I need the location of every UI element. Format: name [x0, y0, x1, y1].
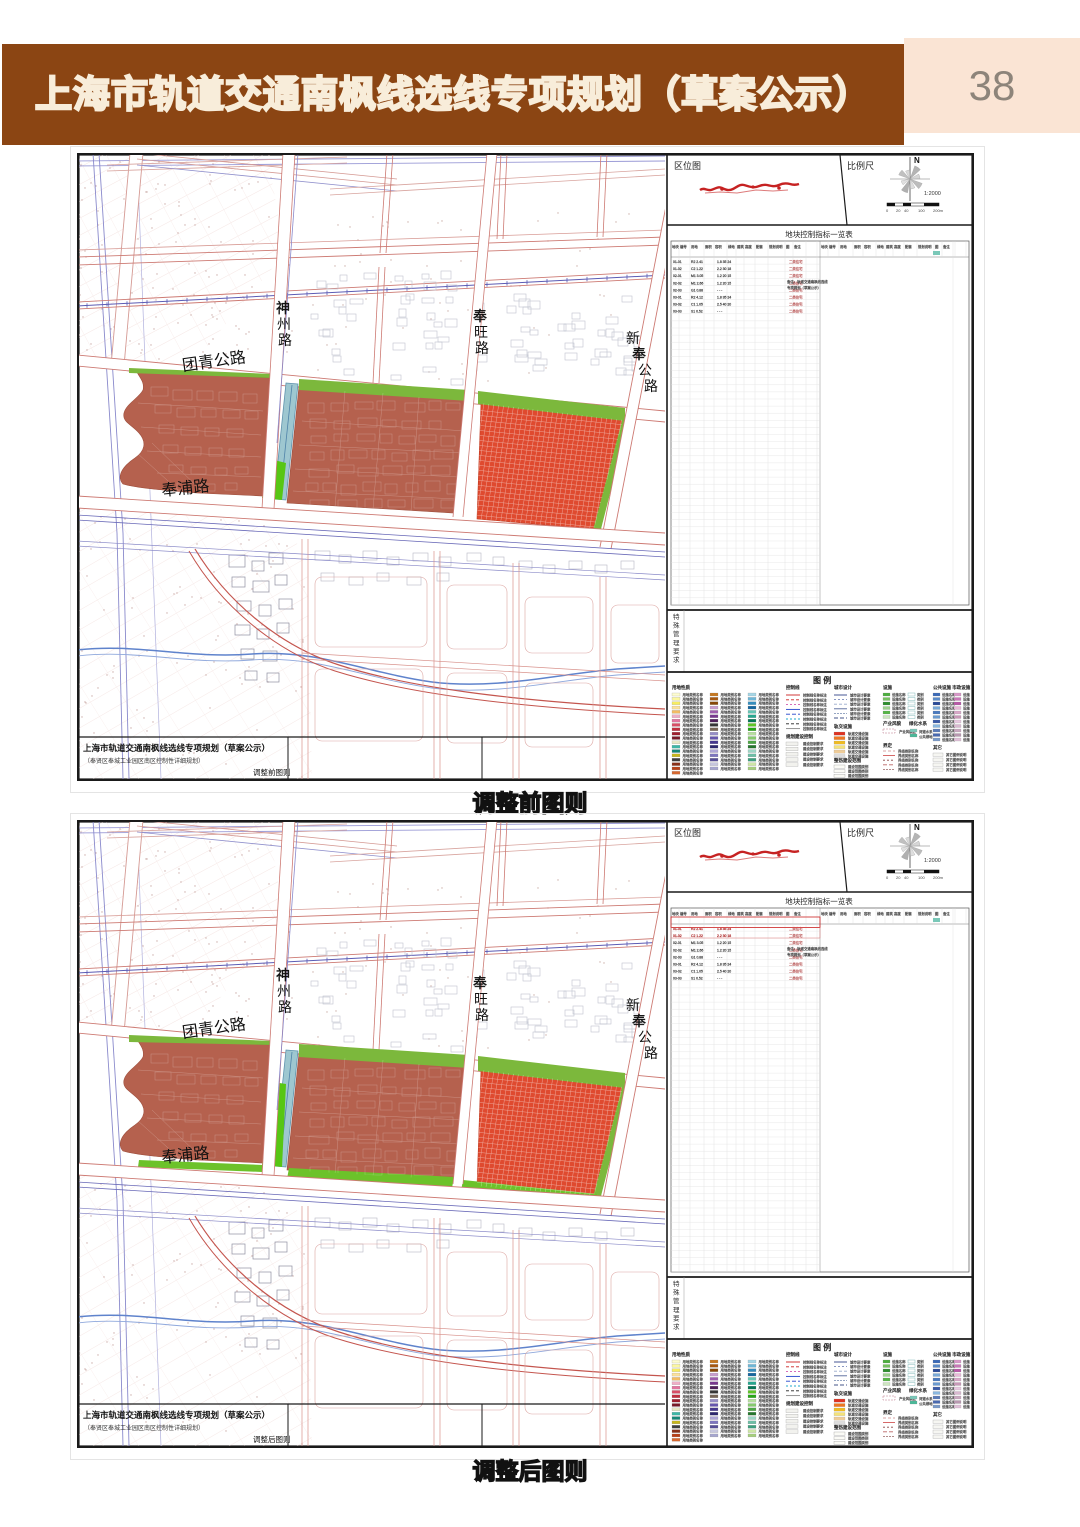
svg-text:20: 20 — [896, 208, 901, 213]
svg-text:界线类别名称: 界线类别名称 — [898, 758, 919, 763]
svg-text:设施名称: 设施名称 — [892, 1372, 906, 1377]
svg-text:用地类别名称: 用地类别名称 — [683, 753, 704, 758]
svg-text:用地类别名称: 用地类别名称 — [683, 1359, 704, 1364]
svg-text:二类住宅: 二类住宅 — [789, 259, 803, 264]
svg-text:用地类别名称: 用地类别名称 — [721, 1398, 742, 1403]
svg-text:控制线名称标注: 控制线名称标注 — [803, 1369, 827, 1374]
svg-text:轨道交通设施: 轨道交通设施 — [848, 735, 869, 740]
svg-text:容积: 容积 — [864, 911, 871, 916]
svg-text:用地类别名称: 用地类别名称 — [721, 1407, 742, 1412]
svg-text:绿化水系: 绿化水系 — [909, 720, 927, 727]
svg-text:地块: 地块 — [821, 244, 828, 249]
svg-text:- - -: - - - — [717, 288, 722, 292]
svg-text:用地类别名称: 用地类别名称 — [721, 1368, 742, 1373]
svg-text:公: 公 — [638, 1029, 652, 1045]
svg-text:轨道交通设施: 轨道交通设施 — [848, 731, 869, 736]
svg-text:界线类别名称: 界线类别名称 — [898, 767, 919, 772]
svg-text:用地: 用地 — [840, 911, 847, 916]
svg-text:城市设计要素: 城市设计要素 — [850, 1378, 871, 1383]
svg-text:用地类别名称: 用地类别名称 — [759, 1420, 780, 1425]
svg-text:奉: 奉 — [473, 308, 487, 324]
svg-text:设施名称: 设施名称 — [892, 1377, 906, 1382]
svg-text:轨道交通设施: 轨道交通设施 — [848, 1402, 869, 1407]
svg-text:1:2000: 1:2000 — [924, 191, 941, 197]
svg-text:用地类别名称: 用地类别名称 — [683, 1403, 704, 1408]
svg-text:轨交设施: 轨交设施 — [834, 723, 852, 730]
svg-text:类别: 类别 — [917, 696, 924, 701]
svg-text:配套: 配套 — [756, 244, 763, 249]
svg-text:用地类别名称: 用地类别名称 — [759, 692, 780, 697]
svg-text:界线类别名称: 界线类别名称 — [898, 1429, 919, 1434]
svg-text:控制线名称标注: 控制线名称标注 — [803, 721, 827, 726]
svg-text:用地类别名称: 用地类别名称 — [721, 749, 742, 754]
svg-text:配套: 配套 — [905, 244, 912, 249]
svg-text:用地类别名称: 用地类别名称 — [721, 1416, 742, 1421]
svg-text:1.8 35 24: 1.8 35 24 — [717, 296, 731, 300]
svg-text:用地: 用地 — [691, 244, 698, 249]
svg-text:用地: 用地 — [840, 244, 847, 249]
svg-text:用地类别名称: 用地类别名称 — [721, 705, 742, 710]
svg-text:类别: 类别 — [917, 1368, 924, 1373]
svg-text:建设控制要求: 建设控制要求 — [803, 1418, 824, 1423]
svg-text:城市设计要素: 城市设计要素 — [850, 711, 871, 716]
svg-text:建设控制要求: 建设控制要求 — [803, 757, 824, 762]
svg-text:建筑: 建筑 — [737, 911, 744, 916]
svg-text:控制线名称标注: 控制线名称标注 — [803, 1379, 827, 1384]
svg-text:用地类别名称: 用地类别名称 — [683, 1376, 704, 1381]
svg-text:界线类别名称: 界线类别名称 — [898, 1425, 919, 1430]
svg-text:公共绿地: 公共绿地 — [919, 1401, 933, 1406]
svg-text:用地类别名称: 用地类别名称 — [721, 740, 742, 745]
svg-text:02-01: 02-01 — [673, 941, 682, 945]
svg-text:建设控制要求: 建设控制要求 — [803, 1408, 824, 1413]
svg-text:控制线名称标注: 控制线名称标注 — [803, 1388, 827, 1393]
svg-text:用地类别名称: 用地类别名称 — [683, 1389, 704, 1394]
svg-text:设施: 设施 — [963, 1399, 970, 1404]
svg-text:编号: 编号 — [680, 911, 687, 916]
svg-text:规划说明: 规划说明 — [769, 911, 783, 916]
svg-text:奉: 奉 — [632, 346, 646, 362]
svg-text:用地类别名称: 用地类别名称 — [683, 1385, 704, 1390]
svg-text:用地类别名称: 用地类别名称 — [721, 1385, 742, 1390]
svg-text:设施: 设施 — [963, 1377, 970, 1382]
svg-text:整饬建设范围: 整饬建设范围 — [834, 757, 861, 764]
svg-text:用地类别名称: 用地类别名称 — [759, 1411, 780, 1416]
svg-text:区位图: 区位图 — [674, 160, 701, 171]
svg-text:城市设计要素: 城市设计要素 — [850, 1360, 871, 1365]
svg-text:用地类别名称: 用地类别名称 — [683, 722, 704, 727]
svg-text:用地类别名称: 用地类别名称 — [683, 766, 704, 771]
svg-text:规划说明: 规划说明 — [769, 244, 783, 249]
svg-text:用地类别名称: 用地类别名称 — [759, 705, 780, 710]
svg-text:二类住宅: 二类住宅 — [789, 969, 803, 974]
svg-text:控制线名称标注: 控制线名称标注 — [803, 707, 827, 712]
svg-text:用地类别名称: 用地类别名称 — [721, 766, 742, 771]
svg-text:公: 公 — [638, 362, 652, 378]
svg-text:用地类别名称: 用地类别名称 — [721, 1424, 742, 1429]
svg-text:其它图例说明: 其它图例说明 — [946, 1429, 967, 1434]
svg-text:用地类别名称: 用地类别名称 — [759, 1372, 780, 1377]
svg-text:用地类别名称: 用地类别名称 — [721, 692, 742, 697]
svg-text:区位图: 区位图 — [674, 827, 701, 838]
svg-text:用地类别名称: 用地类别名称 — [721, 1363, 742, 1368]
svg-text:奉: 奉 — [473, 975, 487, 991]
svg-text:用地类别名称: 用地类别名称 — [759, 722, 780, 727]
svg-text:公共设施 市政设施: 公共设施 市政设施 — [933, 1351, 971, 1358]
svg-text:用地类别名称: 用地类别名称 — [759, 701, 780, 706]
svg-text:专项规划（草案公示）: 专项规划（草案公示） — [787, 285, 821, 290]
svg-text:设施: 设施 — [963, 1395, 970, 1400]
svg-text:M1 3.05: M1 3.05 — [691, 274, 703, 278]
svg-text:建设范围类别: 建设范围类别 — [848, 1440, 869, 1445]
svg-text:控制线名称标注: 控制线名称标注 — [803, 712, 827, 717]
svg-text:用地类别名称: 用地类别名称 — [721, 762, 742, 767]
svg-text:用地类别名称: 用地类别名称 — [683, 740, 704, 745]
svg-text:路: 路 — [278, 332, 292, 348]
svg-text:城市设计要素: 城市设计要素 — [850, 716, 871, 721]
svg-text:建筑: 建筑 — [886, 244, 893, 249]
svg-text:用地类别名称: 用地类别名称 — [683, 1363, 704, 1368]
svg-text:备注：轨道交通南枫线选线: 备注：轨道交通南枫线选线 — [787, 946, 828, 951]
svg-text:设施名称: 设施名称 — [892, 701, 906, 706]
svg-text:州: 州 — [277, 983, 291, 999]
svg-text:其它图例说明: 其它图例说明 — [946, 1419, 967, 1424]
svg-text:城市设计要素: 城市设计要素 — [850, 1364, 871, 1369]
svg-text:要: 要 — [673, 1314, 680, 1322]
svg-text:用地类别名称: 用地类别名称 — [721, 1381, 742, 1386]
svg-text:城市设计要素: 城市设计要素 — [850, 702, 871, 707]
svg-text:用地类别名称: 用地类别名称 — [721, 736, 742, 741]
svg-text:用地类别名称: 用地类别名称 — [683, 1424, 704, 1429]
svg-text:设施名称: 设施名称 — [892, 696, 906, 701]
svg-text:设施: 设施 — [963, 710, 970, 715]
svg-text:城市设计要素: 城市设计要素 — [850, 693, 871, 698]
svg-text:求: 求 — [673, 1322, 680, 1331]
svg-text:面积: 面积 — [705, 244, 712, 249]
svg-text:设施: 设施 — [963, 705, 970, 710]
svg-text:上海市轨道交通南枫线选线专项规划（草案公示）: 上海市轨道交通南枫线选线专项规划（草案公示） — [83, 1410, 270, 1420]
svg-text:用地类别名称: 用地类别名称 — [759, 1368, 780, 1373]
svg-text:用地类别名称: 用地类别名称 — [759, 718, 780, 723]
svg-text:调整前图则: 调整前图则 — [253, 767, 291, 777]
svg-text:规划说明: 规划说明 — [918, 911, 932, 916]
svg-text:N: N — [914, 823, 920, 832]
svg-text:新: 新 — [626, 997, 640, 1013]
svg-text:C2 1.22: C2 1.22 — [691, 934, 703, 938]
svg-text:R2 4.12: R2 4.12 — [691, 296, 703, 300]
svg-text:容积: 容积 — [864, 244, 871, 249]
svg-text:比例尺: 比例尺 — [847, 827, 874, 838]
svg-text:二类住宅: 二类住宅 — [789, 940, 803, 945]
svg-text:用地类别名称: 用地类别名称 — [721, 757, 742, 762]
svg-text:用地类别名称: 用地类别名称 — [683, 1437, 704, 1442]
svg-text:特: 特 — [673, 1279, 680, 1288]
svg-text:用地类别名称: 用地类别名称 — [721, 1389, 742, 1394]
svg-text:配套: 配套 — [905, 911, 912, 916]
svg-text:设施: 设施 — [963, 1359, 970, 1364]
svg-text:用地类别名称: 用地类别名称 — [721, 1403, 742, 1408]
svg-text:编号: 编号 — [680, 244, 687, 249]
svg-text:用地类别名称: 用地类别名称 — [683, 770, 704, 775]
svg-text:城市设计: 城市设计 — [834, 684, 852, 691]
svg-text:旺: 旺 — [474, 324, 488, 340]
svg-text:03-03: 03-03 — [673, 310, 682, 314]
svg-text:用地类别名称: 用地类别名称 — [721, 744, 742, 749]
svg-text:地块: 地块 — [672, 911, 679, 916]
svg-text:用地类别名称: 用地类别名称 — [759, 1398, 780, 1403]
svg-text:用地类别名称: 用地类别名称 — [683, 1368, 704, 1373]
svg-text:设施: 设施 — [963, 728, 970, 733]
svg-text:C1 1.05: C1 1.05 — [691, 303, 703, 307]
svg-text:2.2 30 18: 2.2 30 18 — [717, 934, 731, 938]
svg-text:神: 神 — [276, 967, 290, 983]
svg-text:绿地: 绿地 — [728, 244, 735, 249]
svg-text:地块控制指标一览表: 地块控制指标一览表 — [785, 896, 853, 906]
svg-text:用地类别名称: 用地类别名称 — [759, 1403, 780, 1408]
svg-text:用地类别名称: 用地类别名称 — [683, 705, 704, 710]
svg-text:理: 理 — [673, 1306, 680, 1314]
svg-text:路: 路 — [644, 1045, 658, 1061]
svg-text:设施: 设施 — [963, 1390, 970, 1395]
svg-text:用地类别名称: 用地类别名称 — [683, 1394, 704, 1399]
svg-text:设施: 设施 — [963, 1404, 970, 1409]
svg-text:用地类别名称: 用地类别名称 — [683, 1429, 704, 1434]
svg-text:二类住宅: 二类住宅 — [789, 266, 803, 271]
svg-text:类别: 类别 — [917, 1377, 924, 1382]
svg-text:用地类别名称: 用地类别名称 — [683, 718, 704, 723]
svg-text:用地类别名称: 用地类别名称 — [721, 696, 742, 701]
svg-text:绿地: 绿地 — [877, 244, 884, 249]
svg-text:用地类别名称: 用地类别名称 — [759, 744, 780, 749]
svg-text:1.2 20 15: 1.2 20 15 — [717, 948, 731, 952]
svg-text:用地类别名称: 用地类别名称 — [759, 731, 780, 736]
svg-text:备注: 备注 — [943, 911, 950, 916]
svg-text:2.5 40 20: 2.5 40 20 — [717, 303, 731, 307]
svg-text:轨道交通设施: 轨道交通设施 — [848, 740, 869, 745]
svg-text:用地类别名称: 用地类别名称 — [759, 753, 780, 758]
svg-text:二类住宅: 二类住宅 — [789, 273, 803, 278]
svg-text:M1 2.66: M1 2.66 — [691, 948, 703, 952]
svg-text:设施名称: 设施名称 — [892, 705, 906, 710]
svg-text:M1 2.66: M1 2.66 — [691, 281, 703, 285]
svg-text:建设范围类别: 建设范围类别 — [848, 764, 869, 769]
svg-text:用地类别名称: 用地类别名称 — [759, 762, 780, 767]
svg-text:M1 3.05: M1 3.05 — [691, 941, 703, 945]
svg-text:设施: 设施 — [963, 1363, 970, 1368]
svg-text:轨道交通设施: 轨道交通设施 — [848, 1407, 869, 1412]
svg-text:用地类别名称: 用地类别名称 — [721, 714, 742, 719]
svg-text:02-02: 02-02 — [673, 948, 682, 952]
svg-text:建设范围类别: 建设范围类别 — [848, 1431, 869, 1436]
svg-text:（奉贤区奉城工业园区南区控制性详细规划）: （奉贤区奉城工业园区南区控制性详细规划） — [84, 1424, 204, 1432]
svg-text:C1 1.05: C1 1.05 — [691, 970, 703, 974]
svg-text:其它: 其它 — [933, 744, 942, 751]
svg-text:G1 0.88: G1 0.88 — [691, 288, 703, 292]
svg-text:用地类别名称: 用地类别名称 — [683, 731, 704, 736]
svg-text:用地类别名称: 用地类别名称 — [759, 1416, 780, 1421]
svg-text:- - -: - - - — [717, 977, 722, 981]
svg-text:类别: 类别 — [917, 692, 924, 697]
svg-text:用地类别名称: 用地类别名称 — [683, 1398, 704, 1403]
svg-text:R2 2.41: R2 2.41 — [691, 260, 703, 264]
svg-text:1:2000: 1:2000 — [924, 858, 941, 864]
svg-text:用地类别名称: 用地类别名称 — [759, 709, 780, 714]
svg-text:设施: 设施 — [963, 714, 970, 719]
svg-text:03-01: 03-01 — [673, 963, 682, 967]
svg-text:殊: 殊 — [673, 621, 680, 630]
svg-text:用地类别名称: 用地类别名称 — [721, 718, 742, 723]
svg-text:新: 新 — [626, 330, 640, 346]
svg-text:S1 0.52: S1 0.52 — [691, 977, 703, 981]
svg-text:用地类别名称: 用地类别名称 — [759, 1394, 780, 1399]
svg-text:用地类别名称: 用地类别名称 — [683, 1372, 704, 1377]
svg-text:设施: 设施 — [963, 737, 970, 742]
svg-text:控制线: 控制线 — [786, 1351, 800, 1358]
svg-text:设施: 设施 — [963, 1381, 970, 1386]
svg-text:备注：轨道交通南枫线选线: 备注：轨道交通南枫线选线 — [787, 279, 828, 284]
svg-text:- - -: - - - — [717, 310, 722, 314]
svg-text:城市设计要素: 城市设计要素 — [850, 1373, 871, 1378]
svg-text:G1 0.88: G1 0.88 — [691, 955, 703, 959]
svg-text:图 例: 图 例 — [813, 1342, 831, 1352]
svg-text:200m: 200m — [933, 208, 944, 213]
svg-text:03-01: 03-01 — [673, 296, 682, 300]
svg-text:设施: 设施 — [963, 692, 970, 697]
svg-text:1.8 35 24: 1.8 35 24 — [717, 963, 731, 967]
svg-text:配套: 配套 — [756, 911, 763, 916]
svg-text:界定: 界定 — [883, 1409, 892, 1416]
svg-text:管: 管 — [673, 629, 680, 638]
svg-text:N: N — [914, 156, 920, 165]
svg-text:地块: 地块 — [672, 244, 679, 249]
svg-text:高度: 高度 — [894, 244, 901, 249]
svg-text:用地类别名称: 用地类别名称 — [721, 1394, 742, 1399]
svg-text:轨道交通设施: 轨道交通设施 — [848, 749, 869, 754]
svg-text:二类住宅: 二类住宅 — [789, 962, 803, 967]
svg-text:用地类别名称: 用地类别名称 — [683, 744, 704, 749]
svg-text:备注: 备注 — [794, 911, 801, 916]
svg-text:用地类别名称: 用地类别名称 — [759, 714, 780, 719]
svg-text:用地类别名称: 用地类别名称 — [721, 1433, 742, 1438]
svg-text:面积: 面积 — [854, 911, 861, 916]
svg-text:城市设计要素: 城市设计要素 — [850, 706, 871, 711]
svg-text:理: 理 — [673, 639, 680, 647]
svg-text:用地类别名称: 用地类别名称 — [759, 740, 780, 745]
svg-text:控制线名称标注: 控制线名称标注 — [803, 717, 827, 722]
svg-text:类别: 类别 — [917, 1381, 924, 1386]
svg-text:要: 要 — [673, 647, 680, 655]
svg-text:用地类别名称: 用地类别名称 — [683, 701, 704, 706]
svg-text:二类住宅: 二类住宅 — [789, 309, 803, 314]
svg-text:用地类别名称: 用地类别名称 — [683, 692, 704, 697]
svg-text:02-01: 02-01 — [673, 274, 682, 278]
svg-text:建设范围类别: 建设范围类别 — [848, 773, 869, 778]
svg-text:控制线名称标注: 控制线名称标注 — [803, 693, 827, 698]
svg-text:建设控制要求: 建设控制要求 — [803, 746, 824, 751]
svg-text:控制线名称标注: 控制线名称标注 — [803, 697, 827, 702]
svg-text:用地类别名称: 用地类别名称 — [683, 1407, 704, 1412]
svg-text:用地类别名称: 用地类别名称 — [759, 736, 780, 741]
svg-text:建设范围类别: 建设范围类别 — [848, 768, 869, 773]
svg-text:控制线名称标注: 控制线名称标注 — [803, 1374, 827, 1379]
svg-text:路: 路 — [475, 1007, 489, 1023]
svg-text:类别: 类别 — [917, 705, 924, 710]
svg-text:用地类别名称: 用地类别名称 — [721, 1411, 742, 1416]
svg-text:界线类别名称: 界线类别名称 — [898, 1416, 919, 1421]
svg-text:绿地: 绿地 — [728, 911, 735, 916]
svg-text:控制线名称标注: 控制线名称标注 — [803, 1393, 827, 1398]
svg-text:设施: 设施 — [883, 1351, 892, 1358]
svg-text:专项规划（草案公示）: 专项规划（草案公示） — [787, 952, 821, 957]
svg-text:建设控制要求: 建设控制要求 — [803, 1424, 824, 1429]
svg-text:整饬建设范围: 整饬建设范围 — [834, 1424, 861, 1431]
svg-text:备注: 备注 — [943, 244, 950, 249]
svg-text:用地类别名称: 用地类别名称 — [759, 727, 780, 732]
svg-text:03-02: 03-02 — [673, 303, 682, 307]
svg-text:用地类别名称: 用地类别名称 — [683, 696, 704, 701]
svg-text:地块控制指标一览表: 地块控制指标一览表 — [785, 229, 853, 239]
svg-text:设施名称: 设施名称 — [892, 1363, 906, 1368]
svg-text:用地类别名称: 用地类别名称 — [683, 1420, 704, 1425]
svg-text:1.8 35 24: 1.8 35 24 — [717, 260, 731, 264]
svg-text:产业风貌: 产业风貌 — [883, 720, 901, 727]
svg-text:备注: 备注 — [794, 244, 801, 249]
svg-text:设施: 设施 — [963, 696, 970, 701]
svg-text:100: 100 — [918, 875, 925, 880]
svg-text:1.2 20 15: 1.2 20 15 — [717, 941, 731, 945]
svg-text:轨道交通设施: 轨道交通设施 — [848, 1411, 869, 1416]
svg-text:用地类别名称: 用地类别名称 — [683, 1411, 704, 1416]
svg-text:用地类别名称: 用地类别名称 — [759, 1376, 780, 1381]
svg-text:用地类别名称: 用地类别名称 — [683, 749, 704, 754]
svg-text:殊: 殊 — [673, 1288, 680, 1297]
svg-text:面积: 面积 — [854, 244, 861, 249]
svg-text:高度: 高度 — [745, 244, 752, 249]
svg-text:- - -: - - - — [717, 955, 722, 959]
svg-text:规划建设控制: 规划建设控制 — [786, 1400, 813, 1407]
svg-text:01-02: 01-02 — [673, 934, 682, 938]
svg-text:设施名称: 设施名称 — [892, 692, 906, 697]
svg-text:界定: 界定 — [883, 742, 892, 749]
svg-text:二类住宅: 二类住宅 — [789, 933, 803, 938]
svg-text:用地类别名称: 用地类别名称 — [759, 1407, 780, 1412]
svg-text:用地类别名称: 用地类别名称 — [759, 766, 780, 771]
svg-text:控制线名称标注: 控制线名称标注 — [803, 1360, 827, 1365]
svg-text:城市设计要素: 城市设计要素 — [850, 1369, 871, 1374]
svg-text:类别: 类别 — [917, 1359, 924, 1364]
svg-text:地块: 地块 — [821, 911, 828, 916]
svg-text:03-02: 03-02 — [673, 970, 682, 974]
svg-text:02-02: 02-02 — [673, 281, 682, 285]
svg-text:20: 20 — [896, 875, 901, 880]
svg-text:建设范围类别: 建设范围类别 — [848, 1435, 869, 1440]
svg-text:界线类别名称: 界线类别名称 — [898, 1434, 919, 1439]
svg-text:用地类别名称: 用地类别名称 — [683, 757, 704, 762]
svg-text:2.2 30 18: 2.2 30 18 — [717, 267, 731, 271]
svg-text:用地类别名称: 用地类别名称 — [683, 1433, 704, 1438]
svg-text:用地类别名称: 用地类别名称 — [683, 1416, 704, 1421]
svg-text:高度: 高度 — [894, 911, 901, 916]
svg-text:城市设计要素: 城市设计要素 — [850, 1383, 871, 1388]
svg-text:用地类别名称: 用地类别名称 — [759, 1389, 780, 1394]
svg-text:01-01: 01-01 — [673, 260, 682, 264]
svg-text:二类住宅: 二类住宅 — [789, 926, 803, 931]
svg-text:用地类别名称: 用地类别名称 — [721, 727, 742, 732]
svg-text:用地类别名称: 用地类别名称 — [759, 757, 780, 762]
svg-text:高度: 高度 — [745, 911, 752, 916]
svg-text:用地类别名称: 用地类别名称 — [721, 701, 742, 706]
svg-text:用地类别名称: 用地类别名称 — [721, 731, 742, 736]
